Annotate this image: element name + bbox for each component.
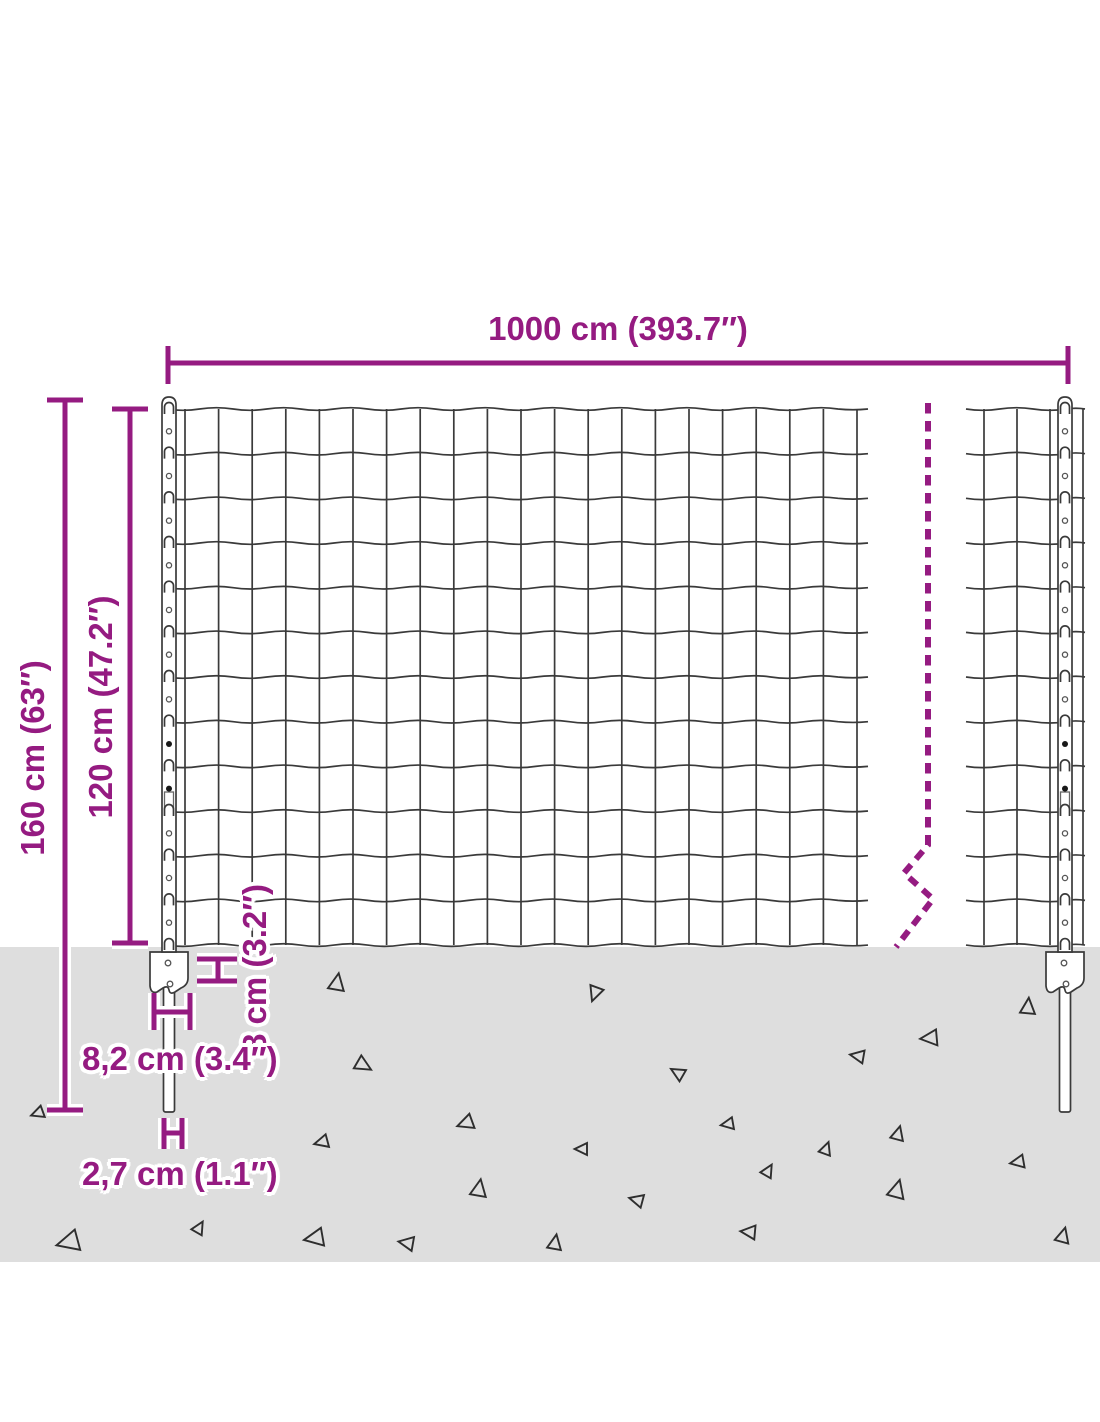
width-dimension-label: 1000 cm (393.7″)	[488, 311, 748, 347]
fence-dimension-diagram: 1000 cm (393.7″) 160 cm (63″) 120 cm (47…	[0, 0, 1100, 1422]
anchor-depth-label: 8 cm (3.2″)	[237, 884, 273, 1052]
width-dimension-line	[168, 346, 1068, 384]
mesh-height-dimension-label: 120 cm (47.2″)	[83, 595, 119, 818]
fence-mesh-main	[166, 408, 868, 947]
break-line	[896, 403, 933, 947]
spike-width-label: 2,7 cm (1.1″)	[82, 1156, 278, 1192]
ground-spike	[1060, 986, 1071, 1112]
total-height-dimension-label: 160 cm (63″)	[15, 660, 51, 856]
diagram-canvas	[0, 0, 1100, 1422]
anchor-width-label: 8,2 cm (3.4″)	[82, 1041, 278, 1077]
